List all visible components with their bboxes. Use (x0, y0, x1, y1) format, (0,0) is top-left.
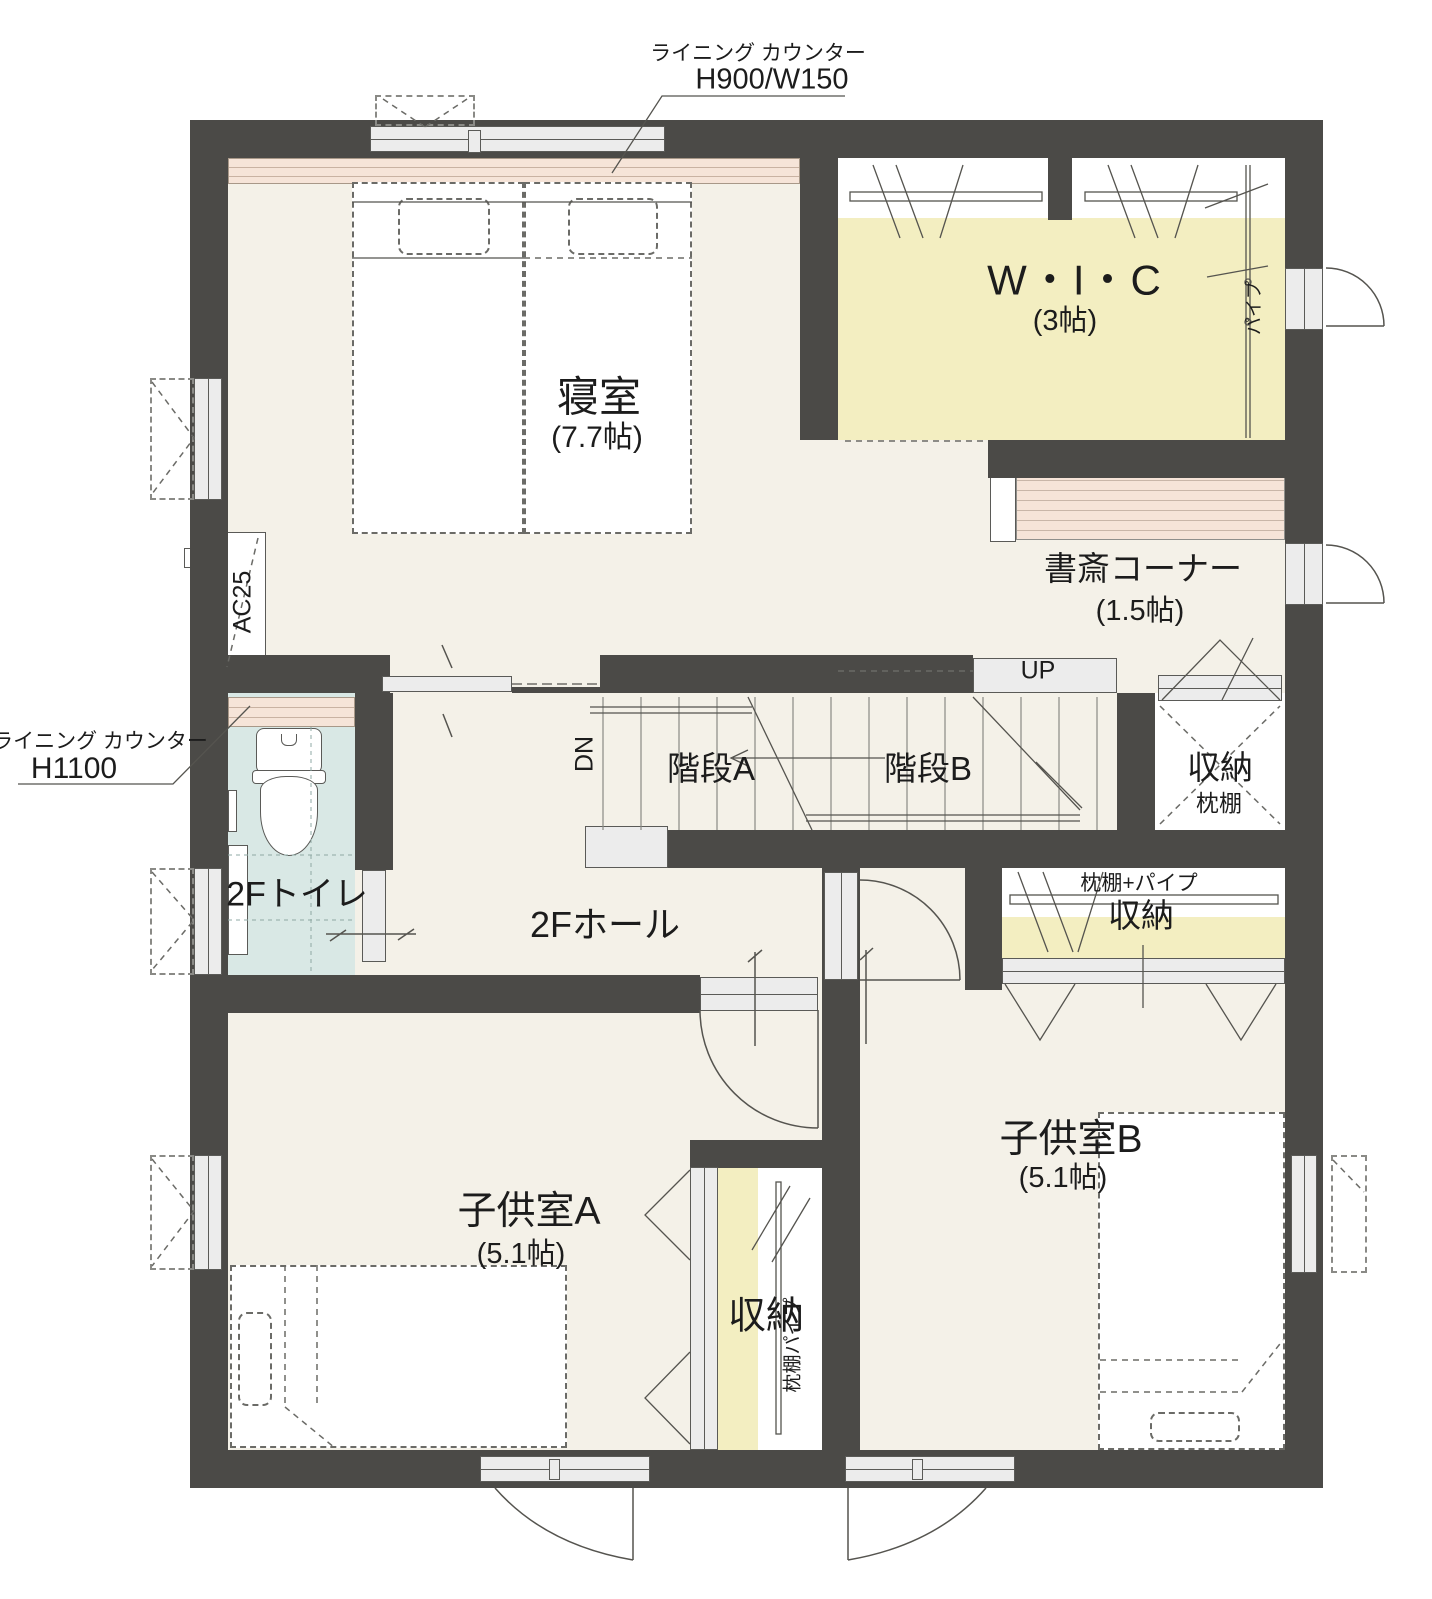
wall-wic-south (988, 440, 1323, 478)
closet-right-label: 収納 (1187, 741, 1253, 789)
window-bottom-childa-handle (549, 1459, 560, 1480)
pillow-left (398, 198, 490, 255)
wall-bedroom-south-b (600, 655, 973, 693)
wall-top (190, 120, 1323, 158)
wall-toilet-east (355, 693, 393, 870)
window-right-childb (1291, 1155, 1317, 1273)
door-sill-wic-right (1285, 268, 1323, 330)
shutter-box-left-childa (150, 1155, 194, 1270)
wall-door-pocket (512, 687, 600, 693)
door-strip-closet-bottom (690, 1167, 718, 1450)
wall-bedroom-wic (800, 158, 838, 440)
toilet-tank-notch (281, 734, 297, 746)
wall-closet-bottom-top (690, 1140, 822, 1168)
window-left-childa (194, 1155, 222, 1270)
stairs-up-label: UP (1021, 657, 1056, 686)
wall-hall-childa (190, 975, 700, 1013)
closet-right-note: 枕棚 (1196, 784, 1242, 818)
shutter-box-left-toilet (150, 868, 194, 975)
shutter-box-right-childb (1331, 1155, 1367, 1273)
wall-closet-right-west (1117, 693, 1155, 830)
window-bedroom-top (370, 126, 665, 152)
window-bottom-childa (480, 1456, 650, 1482)
room-label-toilet: 2Fトイレ (226, 867, 368, 916)
wall-bedroom-south-a (228, 655, 390, 693)
floor-plan-2f: ライニング カウンター H900/W150 寝室 (7.7帖) W・I・C (3… (0, 0, 1432, 1599)
room-size-childb: (5.1帖) (1019, 1154, 1108, 1196)
window-left-toilet (194, 868, 222, 975)
counter-top-label: ライニング カウンター (650, 37, 866, 67)
room-label-childa: 子供室A (457, 1180, 600, 1236)
study-desk-counter (1016, 470, 1285, 540)
window-swing-b (848, 1488, 986, 1560)
wic-pipe-label: パイプ (1240, 281, 1266, 335)
closet-childb-label: 収納 (1108, 889, 1174, 937)
lining-counter-toilet (228, 697, 355, 727)
room-size-wic: (3帖) (1033, 297, 1097, 339)
stair-landing-left (585, 826, 668, 868)
room-label-hall: 2Fホール (530, 896, 680, 948)
door-arc-study (1326, 545, 1384, 603)
lining-counter-bedroom (228, 158, 800, 184)
counter-left-spec: H1100 (31, 752, 117, 786)
door-sill-childa (700, 977, 818, 1011)
stairs-down-label: DN (571, 736, 600, 772)
counter-left-label: ライニング カウンター (0, 725, 208, 755)
counter-top-spec: H900/W150 (695, 64, 848, 97)
stair-a-label: 階段A (667, 742, 755, 790)
study-shelf (990, 470, 1016, 542)
stair-b-label: 階段B (884, 742, 972, 790)
door-sill-childb (824, 872, 858, 980)
wall-left (190, 120, 228, 1488)
sliding-door-bedroom (382, 676, 512, 692)
pillow-child-b (1150, 1412, 1240, 1442)
closet-bottom-label: 収納 (728, 1285, 804, 1340)
shutter-box-left-bedroom (150, 378, 194, 500)
toilet-paper-holder (228, 790, 237, 832)
window-bedroom-top-handle (468, 130, 481, 153)
door-sill-study-right (1285, 543, 1323, 605)
door-arc-wic (1326, 268, 1384, 326)
pillow-right (568, 198, 658, 255)
room-label-study: 書斎コーナー (1044, 542, 1242, 590)
room-size-bedroom: (7.7帖) (551, 412, 643, 456)
dash-shutter-left-marks (152, 382, 194, 1266)
room-size-study: (1.5帖) (1096, 587, 1185, 629)
wall-bottom (190, 1450, 1323, 1488)
door-sill-closet-childb (1002, 958, 1285, 984)
ac-unit-label: AC25 (229, 571, 258, 634)
window-bottom-childb (845, 1456, 1015, 1482)
window-bottom-childb-handle (912, 1459, 923, 1480)
door-bar-closet-right (1158, 675, 1282, 701)
bed-child-a (230, 1265, 567, 1448)
wall-wic-stub (1048, 158, 1072, 220)
wall-closet-childb-west (965, 830, 1002, 990)
pillow-child-a (238, 1312, 272, 1406)
room-size-childa: (5.1帖) (477, 1230, 566, 1272)
window-swing-a (495, 1488, 633, 1560)
window-left-bedroom (194, 378, 222, 500)
shutter-box-top (375, 95, 475, 126)
